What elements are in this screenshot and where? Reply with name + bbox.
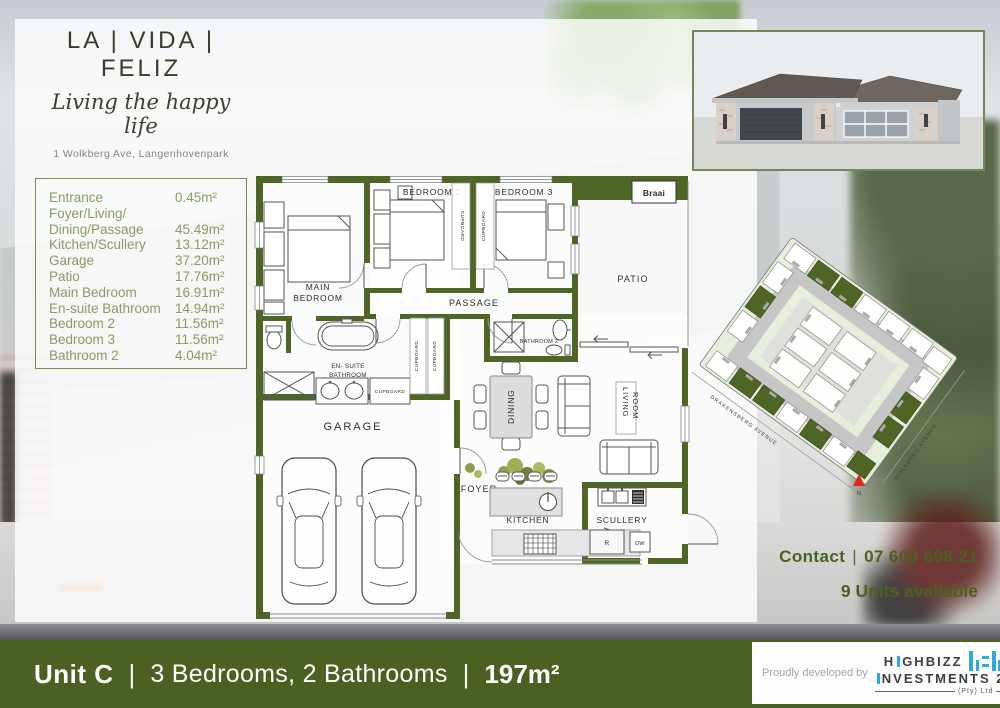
area-value: 4.04m² <box>175 348 233 364</box>
brand-pty: (Pty) Ltd <box>958 688 993 695</box>
area-label: Garage <box>49 253 175 269</box>
brand-i-bar <box>877 673 880 684</box>
developer-logo: HGHBIZZ NVESTMENTS 2 (Pty) Ltd <box>875 651 1000 695</box>
cupboard-label: CUPBOARD <box>432 341 438 372</box>
brand-dash <box>996 691 1000 692</box>
area-value: 13.12m² <box>175 237 233 253</box>
brand-i-bar <box>897 656 900 667</box>
area-label: Kitchen/Scullery <box>49 237 175 253</box>
area-value: 16.91m² <box>175 285 233 301</box>
house-render-box <box>692 30 985 171</box>
room-label-scullery: SCULLERY <box>596 515 647 525</box>
units-available: 9 Units available <box>779 581 978 602</box>
north-label: N <box>857 491 861 497</box>
logo-title: LA | VIDA | FELIZ <box>33 27 249 83</box>
area-row: Main Bedroom 16.91m² <box>49 285 233 301</box>
area-label: Main Bedroom <box>49 285 175 301</box>
area-value: 11.56m² <box>175 316 233 332</box>
room-label-passage: PASSAGE <box>449 298 499 308</box>
separator: | <box>463 659 470 690</box>
contact-block: Contact|07 609 608 21 9 Units available <box>779 547 978 602</box>
cupboard-label: CUPBOARD <box>375 389 406 395</box>
areas-table: Entrance 0.45m² Foyer/Living/ Dining/Pas… <box>35 178 247 369</box>
room-label-main-bedroom: MAIN <box>306 282 330 292</box>
developer-box: Proudly developed by HGHBIZZ NVESTMENTS … <box>752 642 1000 704</box>
site-plan: DRAKENSBERG AVENUE WOLKBERG AVENUE N <box>692 222 1000 514</box>
cupboard-label: CUPBOARD <box>459 211 465 242</box>
floorplan: Braai MAIN BEDROOM <box>252 166 722 624</box>
area-label: Entrance <box>49 190 175 206</box>
separator: | <box>845 547 864 566</box>
brand-line-2: NVESTMENTS 2 <box>875 671 1000 686</box>
area-row: Patio 17.76m² <box>49 269 233 285</box>
cupboard-label: CUPBOARD <box>481 211 487 242</box>
room-bedroom-2: BEDROOM 2 CUPBOARD <box>374 183 470 269</box>
logo-address: 1 Wolkberg Ave, Langenhovenpark <box>33 148 249 160</box>
area-label: Patio <box>49 269 175 285</box>
brand-rule <box>875 691 955 692</box>
cupboard-label: CUPBOARD <box>414 341 420 372</box>
logo-block: LA | VIDA | FELIZ Living the happy life … <box>33 27 249 160</box>
site-plan-plot: DRAKENSBERG AVENUE WOLKBERG AVENUE <box>692 234 978 514</box>
room-label-garage: GARAGE <box>323 421 382 433</box>
appliance-label-dishwasher: DW <box>635 541 645 547</box>
room-label-dining: DINING <box>506 389 516 424</box>
svg-text:BEDROOM: BEDROOM <box>293 293 343 303</box>
room-label-bathroom-2: BATHROOM 2 <box>520 339 558 345</box>
area-value: 45.49m² <box>175 222 233 238</box>
room-label-kitchen: KITCHEN <box>507 515 550 525</box>
unit-name: Unit C <box>34 659 114 690</box>
area-label: Bathroom 2 <box>49 348 175 364</box>
car-icon <box>277 458 341 604</box>
area-row: Bedroom 2 11.56m² <box>49 316 233 332</box>
area-label: Foyer/Living/ Dining/Passage <box>49 206 175 238</box>
area-value: 17.76m² <box>175 269 233 285</box>
area-value: 11.56m² <box>175 332 233 348</box>
area-row: Kitchen/Scullery 13.12m² <box>49 237 233 253</box>
area-row: Bathroom 2 4.04m² <box>49 348 233 364</box>
background-paving-edge <box>0 624 1000 640</box>
house-render <box>694 32 983 169</box>
brand-line-1: HGHBIZZ <box>875 654 963 669</box>
separator: | <box>129 659 136 690</box>
room-label-braai: Braai <box>643 188 665 198</box>
area-row: Entrance 0.45m² <box>49 190 233 206</box>
braai-nook: Braai <box>632 181 676 203</box>
area-row: Garage 37.20m² <box>49 253 233 269</box>
appliance-label-fridge: R <box>605 540 610 547</box>
area-value: 0.45m² <box>175 190 233 206</box>
area-value: 14.94m² <box>175 301 233 317</box>
contact-phone: Contact|07 609 608 21 <box>779 547 978 567</box>
area-label: Bedroom 3 <box>49 332 175 348</box>
room-label-ensuite: EN- SUITE <box>331 363 364 370</box>
developer-prefix: Proudly developed by <box>762 667 868 679</box>
area-label: En-suite Bathroom <box>49 301 175 317</box>
room-scullery: SCULLERY R DW <box>590 488 650 554</box>
car-icon <box>357 458 421 604</box>
area-row: Bedroom 3 11.56m² <box>49 332 233 348</box>
logo-tagline: Living the happy life <box>33 90 249 138</box>
room-label-living: LIVING <box>621 387 630 418</box>
room-label-bedroom-3: BEDROOM 3 <box>495 187 553 197</box>
area-value: 37.20m² <box>175 253 233 269</box>
property-flyer: LA | VIDA | FELIZ Living the happy life … <box>0 0 1000 708</box>
area-row: Foyer/Living/ Dining/Passage 45.49m² <box>49 206 233 238</box>
svg-text:ROOM: ROOM <box>631 392 640 419</box>
unit-specs: 3 Bedrooms, 2 Bathrooms <box>150 660 447 689</box>
area-row: En-suite Bathroom 14.94m² <box>49 301 233 317</box>
room-label-patio: PATIO <box>617 274 648 284</box>
brand-pty-row: (Pty) Ltd <box>875 688 1000 695</box>
area-label: Bedroom 2 <box>49 316 175 332</box>
highbizz-icon <box>969 651 1000 671</box>
unit-area: 197m² <box>484 659 559 690</box>
room-main-bedroom: MAIN BEDROOM <box>264 202 350 314</box>
